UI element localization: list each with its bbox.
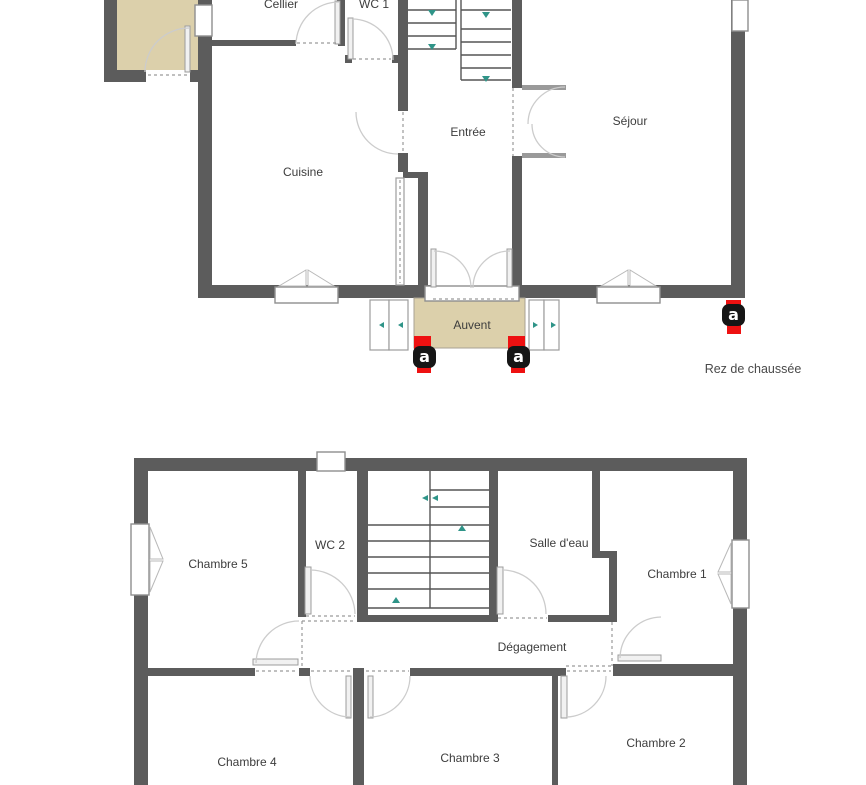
ff-windows — [131, 452, 749, 608]
room-label-wc2: WC 2 — [315, 538, 345, 552]
ground-floor-plan — [104, 0, 748, 373]
room-label-degagement: Dégagement — [498, 640, 567, 654]
gf-stairs — [408, 0, 511, 82]
room-label-salle-deau: Salle d'eau — [529, 536, 588, 550]
floor-caption-rez-de-chaussee: Rez de chaussée — [705, 362, 802, 376]
room-label-chambre3: Chambre 3 — [440, 751, 499, 765]
room-label-entree: Entrée — [450, 125, 485, 139]
room-label-cellier: Cellier — [264, 0, 298, 11]
room-label-chambre2: Chambre 2 — [626, 736, 685, 750]
marker-a-auvent-right[interactable]: a — [507, 346, 530, 368]
ff-stairs — [368, 471, 489, 608]
room-label-wc1: WC 1 — [359, 0, 389, 11]
room-label-cuisine: Cuisine — [283, 165, 323, 179]
marker-a-sejour-corner[interactable]: a — [722, 304, 745, 326]
room-label-auvent: Auvent — [453, 318, 490, 332]
marker-a-auvent-left[interactable]: a — [413, 346, 436, 368]
room-label-chambre1: Chambre 1 — [647, 567, 706, 581]
gf-walls — [104, 0, 745, 298]
floorplan-drawing — [0, 0, 866, 785]
room-label-sejour: Séjour — [613, 114, 648, 128]
room-label-chambre4: Chambre 4 — [217, 755, 276, 769]
room-label-chambre5: Chambre 5 — [188, 557, 247, 571]
floorplan-page: Cellier WC 1 Cuisine Entrée Séjour Auven… — [0, 0, 866, 785]
